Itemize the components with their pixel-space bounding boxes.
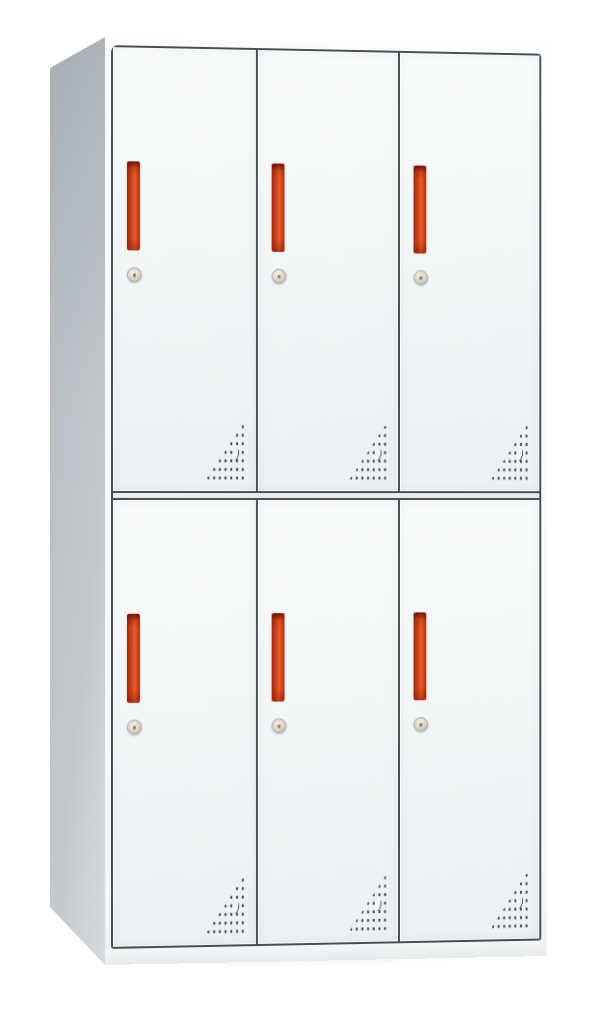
- vent-crescent-mark: [231, 448, 241, 461]
- vent-crescent-mark: [231, 901, 241, 914]
- door-handle: [271, 163, 284, 251]
- key-lock: [271, 269, 286, 284]
- keyhole: [133, 273, 136, 277]
- vent-holes: [205, 876, 245, 935]
- vent-holes: [490, 871, 529, 930]
- key-lock: [271, 718, 286, 733]
- locker-door-top-center: [258, 50, 399, 491]
- cabinet-side-panel: [0, 0, 110, 1009]
- key-lock: [414, 270, 429, 285]
- vent-holes: [349, 423, 388, 481]
- doors-grid: [111, 45, 541, 949]
- cabinet-front: [105, 38, 547, 965]
- locker-door-bottom-left: [113, 500, 256, 947]
- locker-door-bottom-right: [400, 500, 539, 941]
- vent-holes: [205, 422, 245, 481]
- vent-crescent-mark: [374, 448, 383, 461]
- locker-door-top-right: [400, 53, 539, 491]
- locker-cabinet-photo: [0, 0, 605, 1009]
- locker-door-top-left: [113, 47, 256, 491]
- door-handle: [127, 614, 140, 703]
- locker-door-bottom-center: [258, 500, 399, 944]
- door-handle: [271, 613, 284, 701]
- key-lock: [127, 720, 142, 735]
- keyhole: [277, 724, 280, 728]
- door-handle: [127, 161, 140, 250]
- keyhole: [420, 723, 423, 727]
- mid-frame-strip: [113, 493, 539, 498]
- key-lock: [127, 267, 142, 282]
- keyhole: [277, 275, 280, 279]
- vent-crescent-mark: [515, 448, 524, 461]
- keyhole: [420, 276, 423, 280]
- door-handle: [414, 166, 427, 254]
- vent-crescent-mark: [515, 896, 524, 909]
- door-handle: [414, 612, 427, 700]
- vent-holes: [490, 423, 529, 481]
- key-lock: [414, 717, 429, 732]
- keyhole: [133, 726, 136, 730]
- vent-holes: [349, 873, 388, 932]
- vent-crescent-mark: [374, 899, 383, 912]
